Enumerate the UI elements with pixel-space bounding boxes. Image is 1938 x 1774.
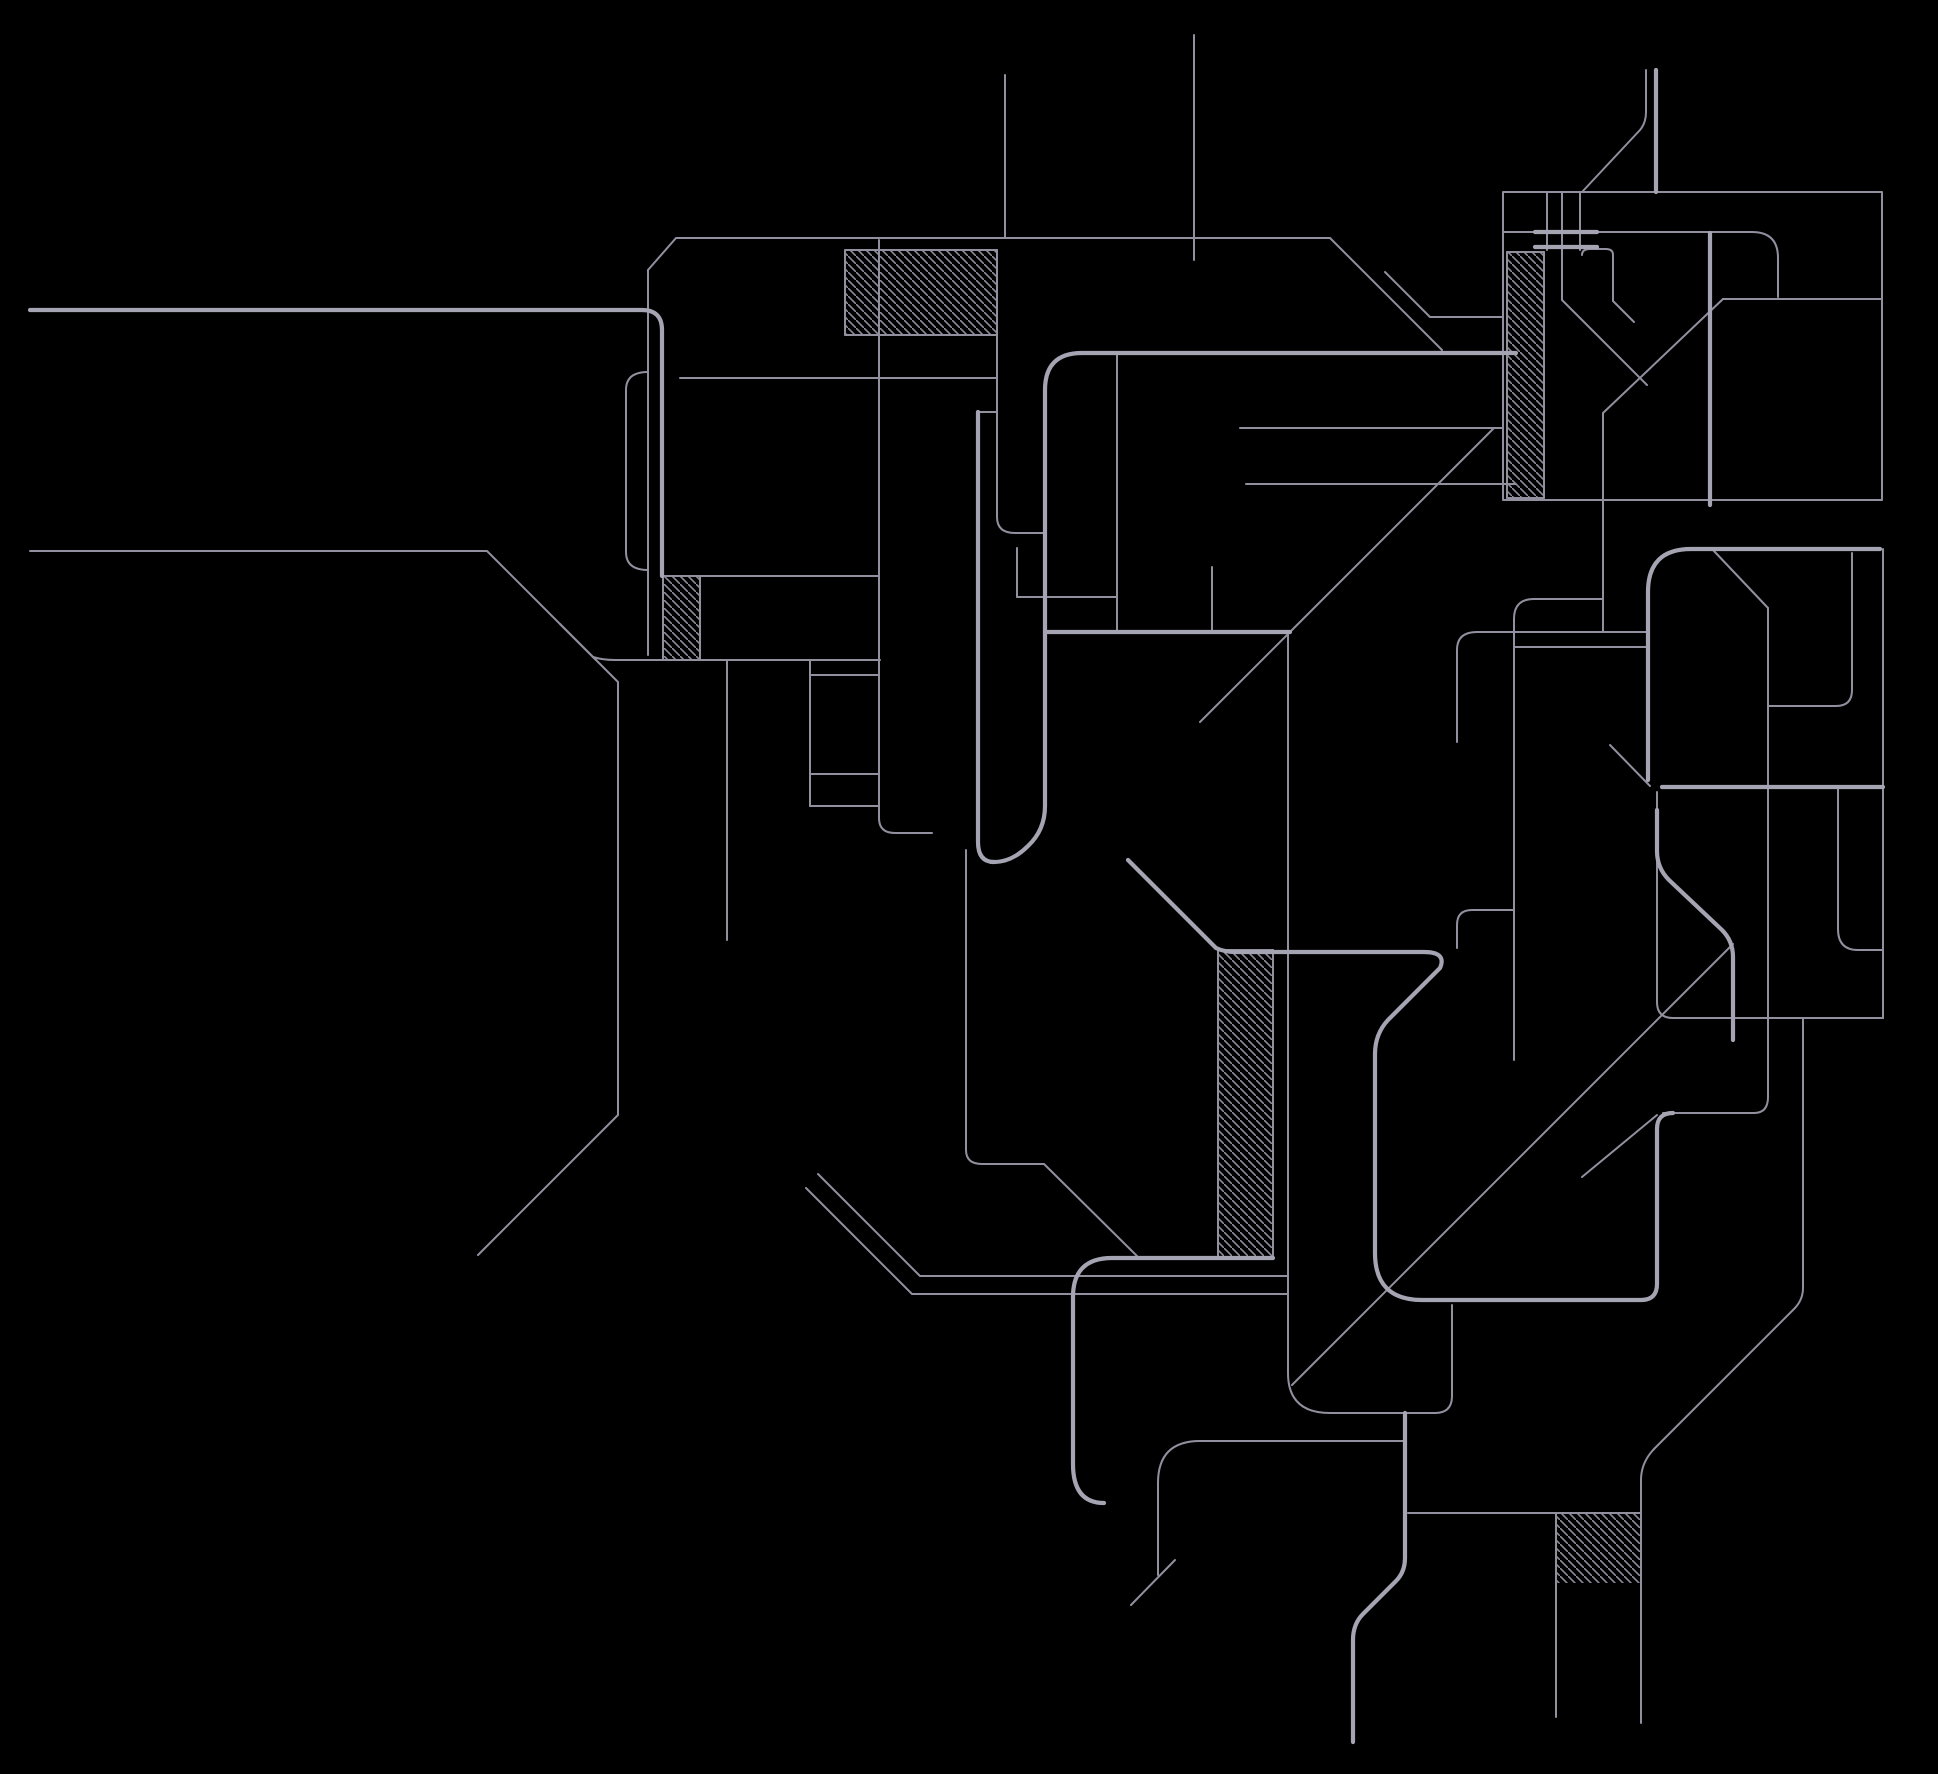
hatch-left-small [663,576,700,660]
hatch-center-tall-bar [1218,950,1273,1256]
hatch-top-center [845,250,997,335]
blueprint-canvas [0,0,1938,1774]
hatch-bottom-right [1556,1513,1641,1583]
technical-drawing-screen [0,0,1938,1774]
hatch-right-tall-bar [1507,252,1544,498]
